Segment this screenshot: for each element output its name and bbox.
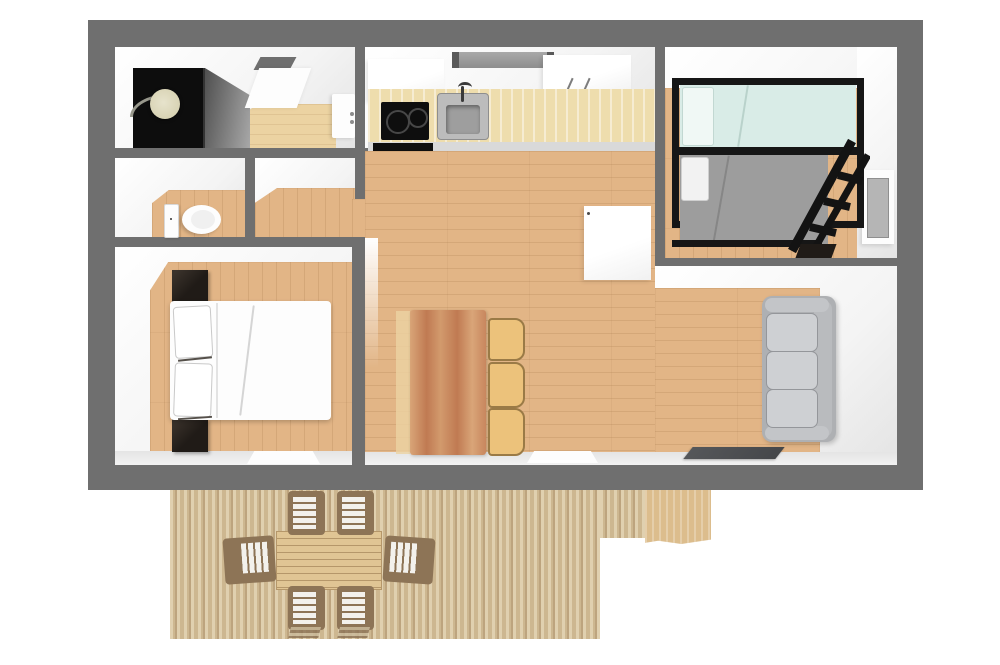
outdoor-chair-top-2 <box>337 491 374 535</box>
floor-plan-canvas <box>0 0 1000 665</box>
living-window <box>527 451 598 463</box>
sofa-cushion-3 <box>766 389 818 428</box>
bed-duvet-fold <box>239 305 255 415</box>
outdoor-chair-slats <box>342 592 365 624</box>
sofa-armrest-top <box>765 298 829 312</box>
wall-tv <box>683 447 784 459</box>
outdoor-chair-left <box>222 535 276 584</box>
wardrobe <box>584 206 651 280</box>
bunk-top-duvet-fold <box>737 85 749 147</box>
kitchen-sink <box>437 93 489 140</box>
sink-basin <box>446 105 480 134</box>
toilet <box>182 205 221 234</box>
bunk-ladder <box>780 133 870 258</box>
outdoor-chair-top-1 <box>288 491 325 535</box>
sofa-cushion-2 <box>766 351 818 390</box>
double-bed <box>170 301 331 420</box>
bunk-bed <box>672 78 864 252</box>
bedroom-window <box>247 451 320 464</box>
bathroom-floor <box>246 104 336 148</box>
washbasin <box>332 94 355 138</box>
outdoor-chair-slats <box>342 497 365 529</box>
floor-plank-light <box>396 311 410 454</box>
outdoor-chair-slats <box>293 497 316 529</box>
wc-door <box>164 204 179 238</box>
outdoor-table <box>276 531 382 590</box>
outdoor-chair-slats <box>241 542 270 574</box>
bunk-top-pillow <box>682 87 714 146</box>
outdoor-chair-back-2 <box>337 624 370 638</box>
outdoor-chair-right <box>382 535 435 584</box>
hallway-floor <box>255 188 355 237</box>
shower-glass-edge <box>203 68 205 148</box>
dining-table <box>410 310 486 455</box>
burner-right <box>408 108 428 128</box>
outdoor-chair-back-1 <box>288 624 321 638</box>
deck-extension-striped <box>600 489 645 538</box>
sink-faucet-spout <box>458 82 472 93</box>
cooktop <box>381 102 429 140</box>
bunk-bottom-pillow <box>681 157 709 201</box>
sofa <box>762 296 836 442</box>
oven-front <box>373 143 433 151</box>
wc-door-handle <box>170 218 172 220</box>
range-hood <box>452 52 554 68</box>
bunk-door-panel <box>867 178 889 238</box>
bunk-bottom-duvet-fold <box>712 156 730 245</box>
toilet-seat <box>191 210 215 229</box>
sofa-armrest-bottom <box>765 426 829 440</box>
burner-left <box>386 110 410 134</box>
wardrobe-handle <box>587 212 590 215</box>
sofa-cushion-1 <box>766 313 818 352</box>
dining-chair-1 <box>488 318 525 361</box>
outdoor-chair-slats <box>389 542 418 574</box>
nightstand-top <box>172 270 208 303</box>
bed-duvet-edge <box>216 303 218 418</box>
bunk-room-storage-box <box>795 244 836 258</box>
bed-pillow-top <box>173 305 214 359</box>
bed-pillow-bottom <box>173 362 213 417</box>
dining-chair-3 <box>488 408 525 456</box>
dining-chair-2 <box>488 362 525 408</box>
outdoor-chair-slats <box>293 592 316 624</box>
wallB-face <box>365 238 378 368</box>
nightstand-bottom <box>172 419 208 452</box>
shower-glass-panel <box>205 68 250 148</box>
washbasin-tap2 <box>350 120 354 124</box>
washbasin-tap <box>350 112 354 116</box>
shower-head <box>150 89 180 119</box>
deck-extension-solid <box>645 489 711 544</box>
